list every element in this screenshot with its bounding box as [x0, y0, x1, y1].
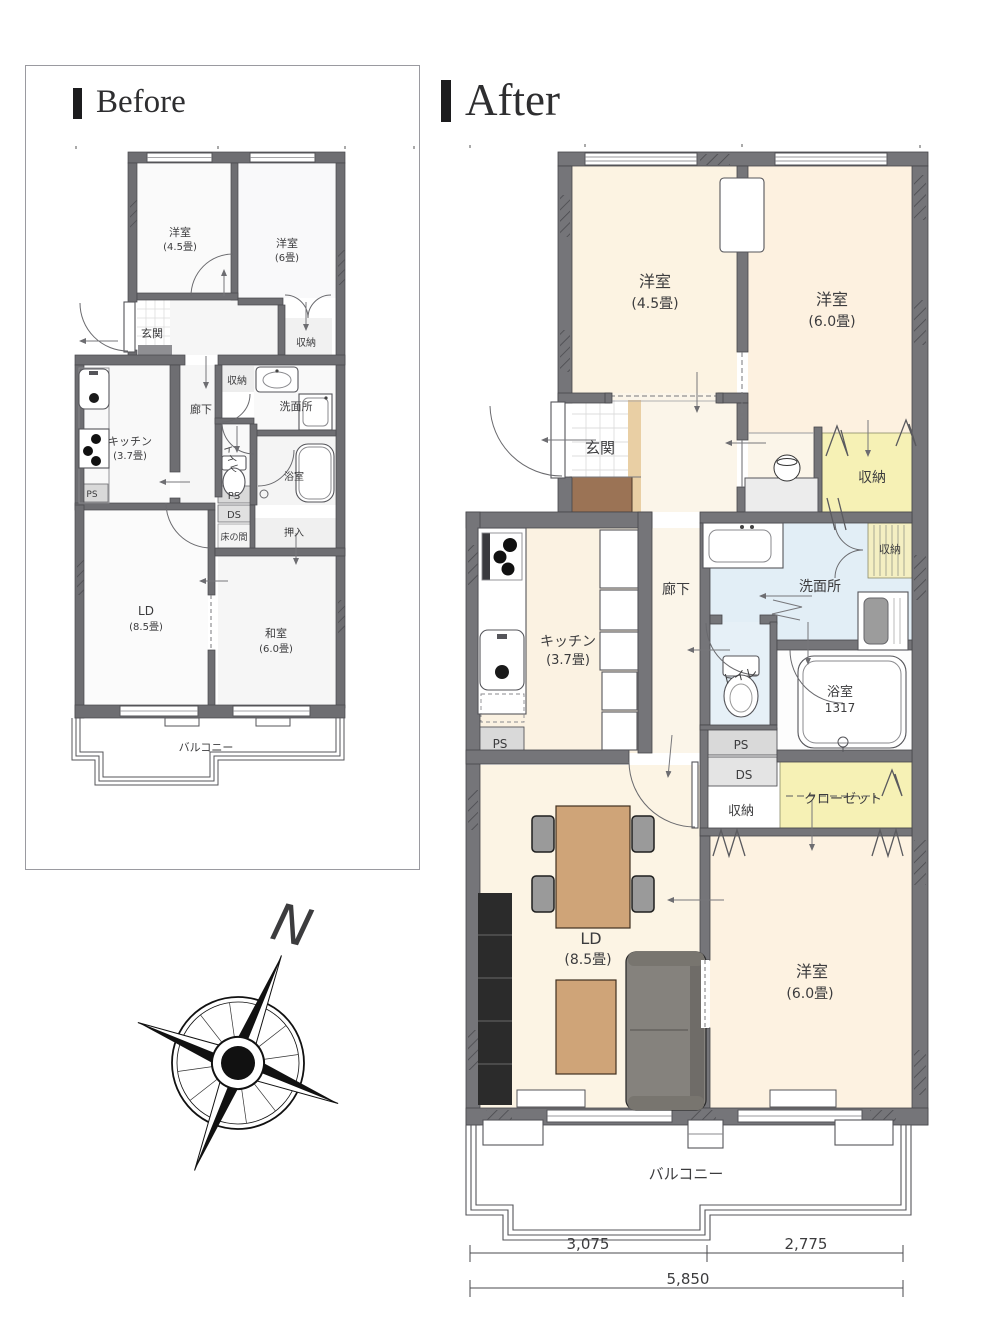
- after-room60bottom-size: (6.0畳): [786, 986, 833, 1002]
- after-ds-label: DS: [736, 768, 753, 782]
- after-kitchen-size: (3.7畳): [546, 653, 590, 668]
- before-ticks: [75, 146, 415, 149]
- kitchen-cabinets: [600, 530, 638, 750]
- after-ps-left-label: PS: [493, 737, 508, 751]
- after-roka-label: 廊下: [662, 581, 690, 598]
- before-washitsu-label: 和室: [265, 626, 287, 640]
- after-ld-size: (8.5畳): [564, 952, 611, 968]
- after-room60bottom-label: 洋室: [796, 962, 828, 981]
- after-kitchen-label: キッチン: [540, 634, 596, 650]
- after-room45-label: 洋室: [639, 272, 671, 291]
- before-shuno-right-label: 収納: [296, 336, 316, 349]
- before-oshiire-label: 押入: [284, 526, 304, 539]
- kitchen-sink-icon: [79, 369, 109, 409]
- after-room45-size: (4.5畳): [631, 296, 678, 312]
- before-room45-label: 洋室: [169, 225, 191, 239]
- bedroom-cabinet: [720, 178, 764, 252]
- before-ps-right-label: PS: [228, 491, 240, 502]
- after-genkan-label: 玄関: [585, 439, 615, 457]
- before-washitsu-size: (6.0畳): [259, 643, 293, 655]
- before-balcony-label: バルコニー: [179, 741, 234, 754]
- after-ps-right-label: PS: [734, 738, 749, 752]
- coffee-table: [556, 980, 616, 1074]
- after-bath-label: 浴室: [827, 684, 853, 700]
- before-tokonoma-label: 床の間: [220, 531, 247, 543]
- before-room45-size: (4.5畳): [163, 241, 197, 253]
- before-kitchen-size: (3.7畳): [113, 450, 147, 462]
- washing-machine-icon: [858, 592, 908, 650]
- before-ps-left-label: PS: [86, 490, 97, 500]
- kitchen-stove-icon: [79, 429, 109, 468]
- ld-door-leaf: [692, 762, 698, 828]
- washbasin-icon: [256, 367, 298, 392]
- after-ticks: [469, 144, 921, 148]
- before-ds-label: DS: [227, 510, 241, 521]
- dining-table: [556, 806, 630, 928]
- before-kitchen-label: キッチン: [108, 435, 152, 448]
- sofa: [626, 952, 706, 1110]
- dimension-total: 5,850: [667, 1270, 710, 1288]
- before-floorplan: 洋室 (4.5畳) 洋室 (6畳) 玄関 収納 収納 洗面所 キッチン (3.7…: [25, 65, 420, 870]
- compass-wheel: [130, 915, 382, 1195]
- tv-board: [478, 893, 512, 1105]
- after-room60top-label: 洋室: [816, 290, 848, 309]
- after-floorplan: 3,075 2,775 5,850 洋室 (4.5畳) 洋室 (6.0畳) 玄関…: [440, 70, 1008, 1344]
- before-room6-size: (6畳): [275, 252, 299, 264]
- after-shuno-topright-label: 収納: [858, 470, 886, 486]
- after-dimensions: 3,075 2,775 5,850: [470, 1235, 903, 1297]
- compass-north-label: N: [266, 892, 318, 960]
- kitchen-sink-icon: [480, 630, 524, 690]
- before-shuno-mid-label: 収納: [227, 374, 247, 387]
- before-room6-label: 洋室: [276, 236, 298, 250]
- renovation-floorplan-page: { "page": { "background": "#ffffff" }, "…: [0, 0, 1008, 1344]
- dimension-left: 3,075: [567, 1235, 610, 1253]
- after-room60top-size: (6.0畳): [808, 314, 855, 330]
- after-ld-label: LD: [580, 929, 601, 948]
- after-shuno-side-label: 収納: [879, 543, 901, 556]
- before-roka-label: 廊下: [190, 402, 212, 416]
- before-ld-label: LD: [138, 604, 154, 618]
- dimension-right: 2,775: [785, 1235, 828, 1253]
- compass-rose: N: [130, 885, 410, 1195]
- after-closet-label: クローゼット: [804, 792, 882, 807]
- before-bath-label: 浴室: [284, 470, 304, 483]
- before-ld-size: (8.5畳): [129, 621, 163, 633]
- after-shuno-mid-label: 収納: [728, 804, 754, 819]
- washbasin-icon: [703, 523, 783, 568]
- after-senmenjo-label: 洗面所: [799, 579, 841, 595]
- after-bath-size: 1317: [825, 701, 856, 715]
- after-balcony-label: バルコニー: [649, 1165, 724, 1183]
- before-senmenjo-label: 洗面所: [280, 400, 313, 413]
- before-genkan-label: 玄関: [141, 326, 163, 340]
